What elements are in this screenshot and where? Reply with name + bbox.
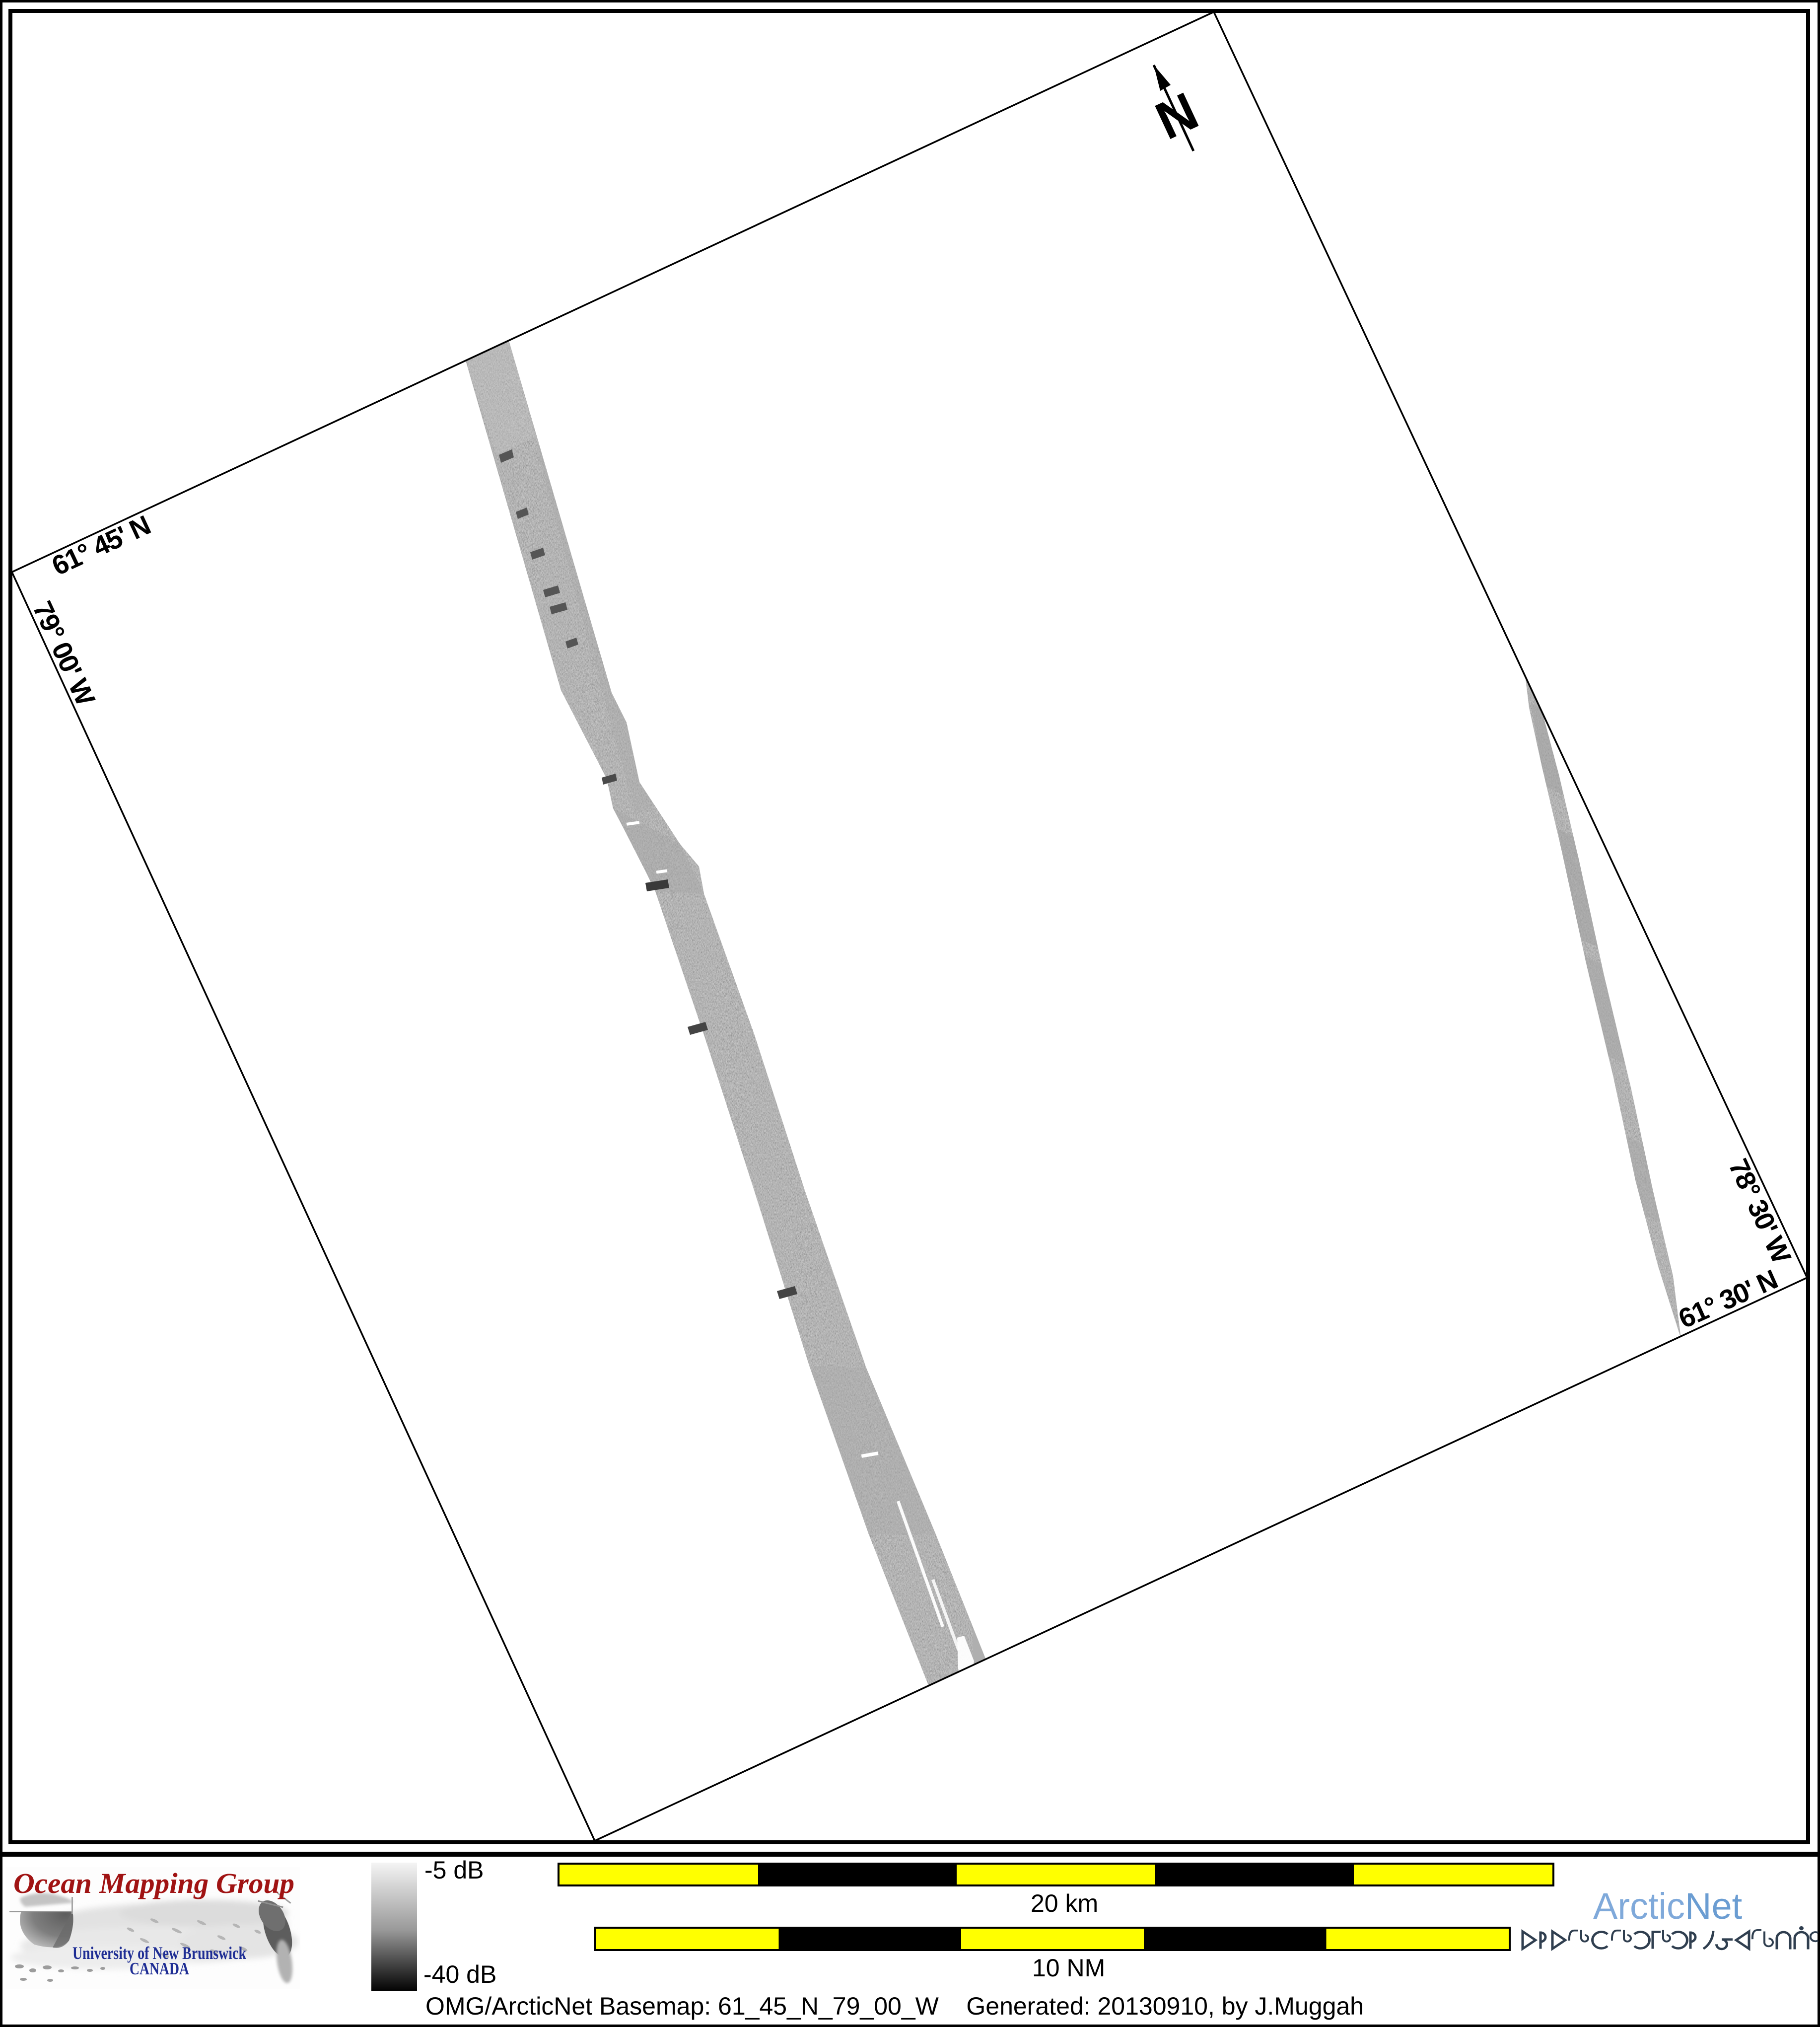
svg-text:Ocean Mapping Group: Ocean Mapping Group xyxy=(13,1867,294,1899)
svg-text:78° 30' W: 78° 30' W xyxy=(1723,1154,1797,1268)
svg-text:79° 00' W: 79° 00' W xyxy=(27,596,101,710)
svg-text:61° 30' N: 61° 30' N xyxy=(1674,1264,1782,1334)
svg-text:N: N xyxy=(1147,80,1207,150)
svg-text:CANADA: CANADA xyxy=(130,1959,190,1978)
svg-text:61° 45' N: 61° 45' N xyxy=(47,509,154,581)
